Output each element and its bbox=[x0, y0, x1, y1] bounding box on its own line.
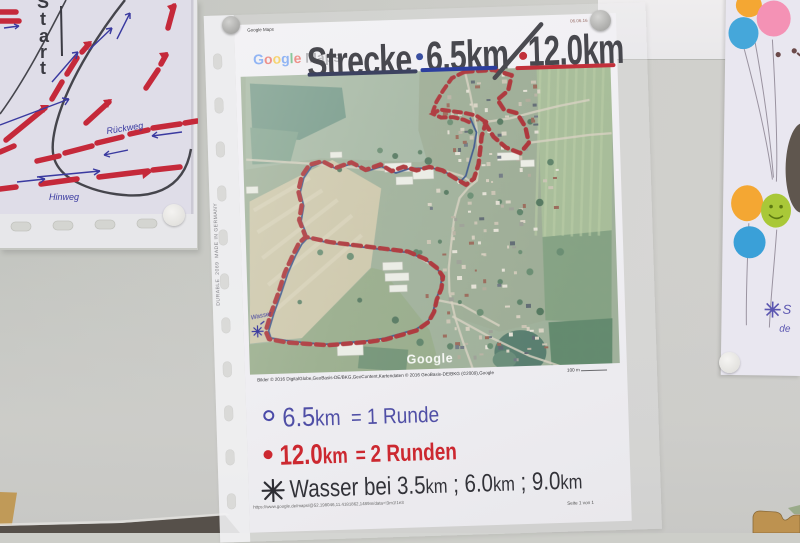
svg-text:de: de bbox=[779, 324, 791, 335]
svg-text:t: t bbox=[40, 58, 46, 78]
svg-text:Google: Google bbox=[406, 351, 453, 366]
svg-text:S: S bbox=[783, 302, 792, 317]
svg-text:Hinweg: Hinweg bbox=[49, 192, 79, 202]
